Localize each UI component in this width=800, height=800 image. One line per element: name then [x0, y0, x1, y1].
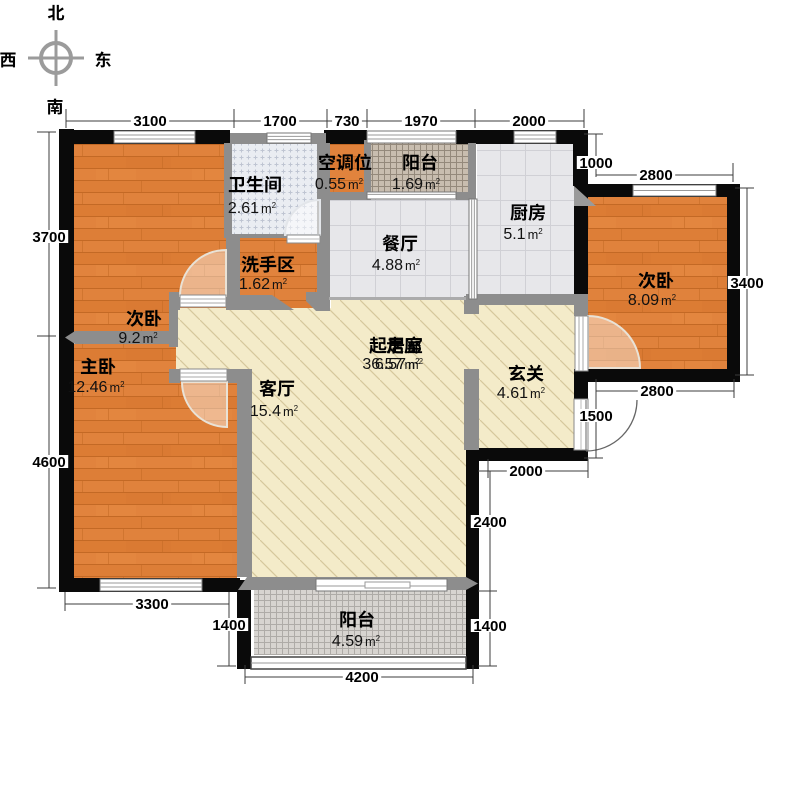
svg-text:12.46m2: 12.46m2	[67, 379, 125, 396]
svg-text:1.62m2: 1.62m2	[239, 276, 288, 293]
svg-text:1970: 1970	[404, 113, 437, 130]
svg-text:2000: 2000	[512, 113, 545, 130]
svg-text:1400: 1400	[212, 617, 245, 634]
svg-text:1400: 1400	[473, 618, 506, 635]
svg-text:15.4m2: 15.4m2	[250, 403, 299, 420]
svg-text:4.61m2: 4.61m2	[497, 385, 546, 402]
svg-text:4200: 4200	[345, 669, 378, 686]
svg-text:3700: 3700	[32, 229, 65, 246]
svg-text:1.69m2: 1.69m2	[392, 176, 441, 193]
svg-text:1500: 1500	[579, 408, 612, 425]
svg-text:1000: 1000	[579, 155, 612, 172]
svg-text:5.1m2: 5.1m2	[503, 226, 543, 243]
svg-text:3100: 3100	[133, 113, 166, 130]
svg-text:2800: 2800	[640, 383, 673, 400]
svg-text:4.88m2: 4.88m2	[372, 257, 421, 274]
svg-text:3300: 3300	[135, 596, 168, 613]
svg-text:1700: 1700	[263, 113, 296, 130]
svg-text:4600: 4600	[32, 454, 65, 471]
svg-text:2400: 2400	[473, 514, 506, 531]
svg-text:9.2m2: 9.2m2	[118, 330, 158, 347]
svg-text:2.61m2: 2.61m2	[228, 200, 277, 217]
svg-text:2000: 2000	[509, 463, 542, 480]
svg-text:8.09m2: 8.09m2	[628, 292, 677, 309]
svg-text:6.57m2: 6.57m2	[375, 356, 424, 373]
svg-text:0.55m2: 0.55m2	[315, 176, 364, 193]
svg-text:2800: 2800	[639, 167, 672, 184]
svg-text:4.59m2: 4.59m2	[332, 633, 381, 650]
svg-text:730: 730	[334, 113, 359, 130]
svg-text:3400: 3400	[730, 275, 763, 292]
